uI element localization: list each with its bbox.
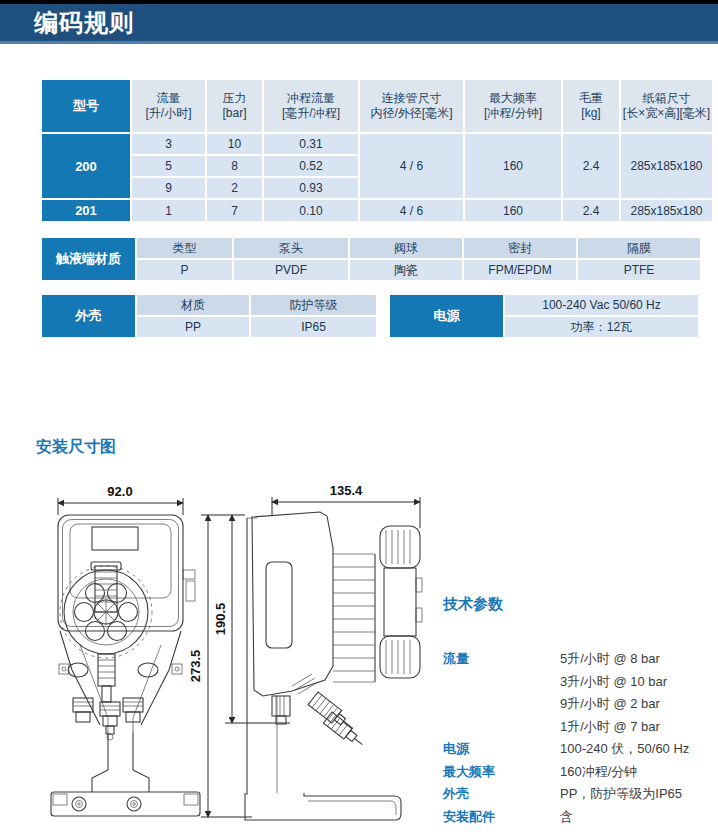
spec-table: 型号 流量 [升/小时] 压力 [bar] 冲程流量 [毫升/冲程] 连接管尺寸… — [42, 80, 712, 221]
cell-flow: 5 — [132, 156, 205, 176]
cell-max-freq: 160 — [465, 134, 561, 198]
side-view-drawing: 135.4 — [245, 483, 422, 820]
param-value: 5升/小时 @ 8 bar — [560, 648, 667, 671]
header-unit: [升/小时] — [145, 106, 191, 121]
cell-carton: 285x185x180 — [621, 200, 712, 221]
housing-value: IP65 — [251, 317, 376, 337]
cell-max-freq: 160 — [465, 200, 561, 221]
power-table: 电源 100-240 Vac 50/60 Hz 功率：12瓦 — [390, 295, 698, 337]
housing-value: PP — [137, 317, 249, 337]
param-value: 9升/小时 @ 2 bar — [560, 693, 667, 716]
title-bar-underline — [0, 41, 718, 44]
title-bar: 编码规则 — [0, 4, 718, 41]
param-value: PP，防护等级为IP65 — [560, 783, 682, 806]
installation-drawing: 92.0 — [20, 470, 440, 834]
install-section-title: 安装尺寸图 — [36, 437, 116, 458]
tech-param-max-freq: 最大频率 160冲程/分钟 — [443, 761, 711, 784]
param-value: 3升/小时 @ 10 bar — [560, 671, 667, 694]
param-label: 最大频率 — [443, 761, 560, 784]
cell-stroke-flow: 0.93 — [264, 178, 358, 198]
material-header: 泵头 — [234, 238, 348, 258]
front-width-dim-label: 92.0 — [107, 484, 132, 499]
param-value: 160冲程/分钟 — [560, 761, 637, 784]
header-unit: [kg] — [581, 106, 600, 121]
spec-header-model: 型号 — [42, 80, 130, 132]
cell-stroke-flow: 0.31 — [264, 134, 358, 154]
param-value: 含 — [560, 806, 573, 829]
material-value: PVDF — [234, 260, 348, 280]
cell-weight: 2.4 — [563, 134, 619, 198]
cell-pressure: 2 — [207, 178, 262, 198]
cell-pressure: 10 — [207, 134, 262, 154]
param-label: 安装配件 — [443, 806, 560, 829]
cell-pipe-size: 4 / 6 — [360, 200, 463, 221]
cell-flow: 3 — [132, 134, 205, 154]
cell-pressure: 8 — [207, 156, 262, 176]
front-view-drawing: 92.0 — [51, 484, 200, 816]
header-label: 纸箱尺寸 — [643, 91, 691, 106]
upper-height-dim-label: 190.5 — [213, 603, 228, 636]
material-value: PTFE — [578, 260, 700, 280]
tech-param-accessories: 安装配件 含 — [443, 806, 711, 829]
material-label: 触液端材质 — [42, 238, 135, 280]
param-values: 5升/小时 @ 8 bar 3升/小时 @ 10 bar 9升/小时 @ 2 b… — [560, 648, 667, 738]
header-unit: [冲程/分钟] — [484, 106, 542, 121]
cell-pressure: 7 — [207, 200, 262, 221]
power-label: 电源 — [390, 295, 503, 337]
cell-flow: 1 — [132, 200, 205, 221]
cell-weight: 2.4 — [563, 200, 619, 221]
param-label: 流量 — [443, 648, 560, 738]
header-label: 连接管尺寸 — [382, 91, 442, 106]
material-table: 触液端材质 类型 泵头 阀球 密封 隔膜 P PVDF 陶瓷 FPM/EPDM … — [42, 238, 700, 280]
material-header: 阀球 — [350, 238, 462, 258]
total-height-dim-label: 273.5 — [188, 650, 203, 683]
material-header: 类型 — [137, 238, 232, 258]
housing-header: 材质 — [137, 295, 249, 315]
material-header: 密封 — [464, 238, 576, 258]
tech-params-list: 流量 5升/小时 @ 8 bar 3升/小时 @ 10 bar 9升/小时 @ … — [443, 648, 711, 828]
header-label: 毛重 — [579, 91, 603, 106]
cell-stroke-flow: 0.10 — [264, 200, 358, 221]
param-label: 电源 — [443, 738, 560, 761]
housing-table: 外壳 材质 防护等级 PP IP65 — [42, 295, 376, 337]
header-unit: [bar] — [222, 106, 246, 121]
power-wattage: 功率：12瓦 — [505, 317, 698, 337]
tech-param-housing: 外壳 PP，防护等级为IP65 — [443, 783, 711, 806]
height-dimensions: 273.5 190.5 — [188, 515, 290, 817]
cell-stroke-flow: 0.52 — [264, 156, 358, 176]
spec-header-flow: 流量 [升/小时] — [132, 80, 205, 132]
material-value: FPM/EPDM — [464, 260, 576, 280]
spec-header-carton: 纸箱尺寸 [长×宽×高][毫米] — [621, 80, 712, 132]
material-value: 陶瓷 — [350, 260, 462, 280]
housing-header: 防护等级 — [251, 295, 376, 315]
header-unit: [毫升/冲程] — [282, 106, 340, 121]
model-201-cell: 201 — [42, 200, 130, 221]
power-voltage: 100-240 Vac 50/60 Hz — [505, 295, 698, 315]
header-label: 最大频率 — [489, 91, 537, 106]
housing-label: 外壳 — [42, 295, 135, 337]
spec-header-max-freq: 最大频率 [冲程/分钟] — [465, 80, 561, 132]
page-title: 编码规则 — [0, 7, 134, 39]
header-label: 压力 — [223, 91, 247, 106]
side-width-dim-label: 135.4 — [330, 483, 363, 498]
header-label: 流量 — [157, 91, 181, 106]
header-label: 型号 — [73, 97, 99, 115]
model-200-cell: 200 — [42, 134, 130, 198]
tech-params-title: 技术参数 — [443, 595, 503, 614]
tech-param-power: 电源 100-240 伏，50/60 Hz — [443, 738, 711, 761]
datasheet-page: 编码规则 型号 流量 [升/小时] 压力 [bar] 冲程流量 [毫升/冲程] … — [0, 0, 718, 834]
cell-carton: 285x185x180 — [621, 134, 712, 198]
spec-header-pressure: 压力 [bar] — [207, 80, 262, 132]
header-label: 冲程流量 — [287, 91, 335, 106]
cell-flow: 9 — [132, 178, 205, 198]
spec-header-stroke-flow: 冲程流量 [毫升/冲程] — [264, 80, 358, 132]
header-unit: [长×宽×高][毫米] — [623, 106, 710, 121]
param-value: 100-240 伏，50/60 Hz — [560, 738, 689, 761]
param-value: 1升/小时 @ 7 bar — [560, 716, 667, 739]
header-unit: 内径/外径[毫米] — [370, 106, 452, 121]
material-header: 隔膜 — [578, 238, 700, 258]
param-label: 外壳 — [443, 783, 560, 806]
spec-header-weight: 毛重 [kg] — [563, 80, 619, 132]
material-value: P — [137, 260, 232, 280]
tech-param-flow: 流量 5升/小时 @ 8 bar 3升/小时 @ 10 bar 9升/小时 @ … — [443, 648, 711, 738]
cell-pipe-size: 4 / 6 — [360, 134, 463, 198]
spec-header-pipe-size: 连接管尺寸 内径/外径[毫米] — [360, 80, 463, 132]
